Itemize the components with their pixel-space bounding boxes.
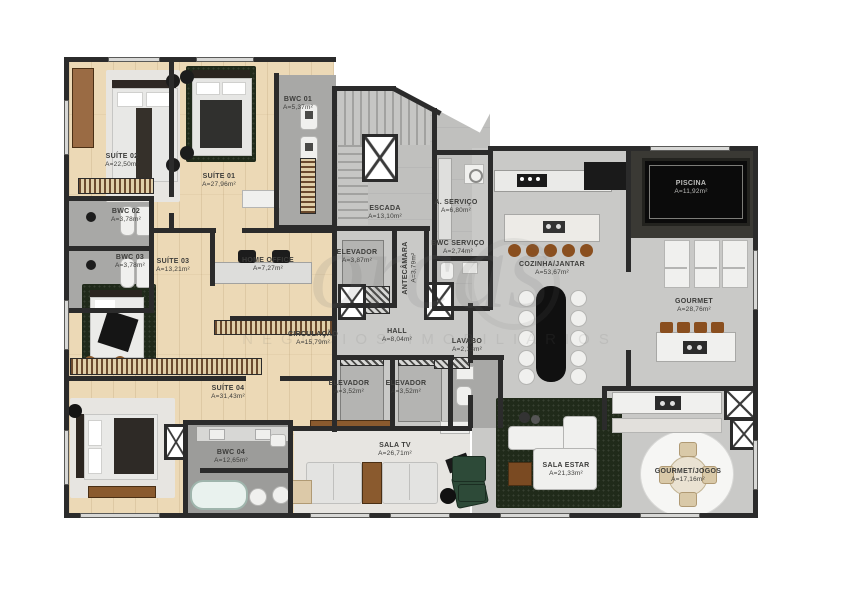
bar-stool xyxy=(580,244,593,257)
room-label-elevador-1: ELEVADORA=3,87m² xyxy=(337,248,378,266)
wall xyxy=(432,155,437,311)
wall xyxy=(602,386,758,391)
room-label-elevador-2: ELEVADORA=3,52m² xyxy=(329,379,370,397)
wall xyxy=(424,226,429,308)
bar-stool xyxy=(562,244,575,257)
room-label-bwc-04: BWC 04A=12,65m² xyxy=(214,448,248,466)
lounge-chair xyxy=(664,240,690,288)
wall xyxy=(292,426,472,431)
room-label-home-office: HOME OFFICEA=7,27m² xyxy=(242,256,294,274)
side-table xyxy=(440,488,456,504)
window xyxy=(500,513,570,518)
wall xyxy=(626,146,631,241)
window xyxy=(196,57,254,62)
window xyxy=(108,57,160,62)
room-label-piscina: PISCINAA=11,92m² xyxy=(674,179,707,197)
closet-hatch-suite-02 xyxy=(78,178,154,194)
dining-chair xyxy=(570,330,587,347)
wall xyxy=(498,355,503,428)
bar-stool xyxy=(677,322,690,333)
wall xyxy=(66,246,154,251)
bar-stool xyxy=(711,322,724,333)
wall xyxy=(183,420,290,425)
games-chair xyxy=(679,492,697,507)
wall xyxy=(169,57,174,197)
sofa-chaise xyxy=(508,426,566,450)
wall xyxy=(334,226,430,231)
bed-suite-01 xyxy=(192,70,250,154)
wardrobe-suite-02 xyxy=(72,68,94,148)
wall xyxy=(200,468,290,473)
toilet xyxy=(440,262,454,280)
shaft xyxy=(338,284,366,320)
nightstand xyxy=(180,146,194,160)
window xyxy=(753,440,758,490)
window xyxy=(650,146,730,151)
wall xyxy=(66,376,246,381)
washer xyxy=(464,164,484,184)
room-label-antecamara: ANTECÂMARAA=3,79m² xyxy=(401,241,419,294)
shaft-hatch xyxy=(364,286,390,314)
shower-head xyxy=(86,260,96,270)
window xyxy=(390,513,450,518)
dining-chair xyxy=(570,310,587,327)
floor-lamp xyxy=(68,404,82,418)
room-label-lavabo: LAVABOA=2,13m² xyxy=(452,337,482,355)
wall xyxy=(66,196,154,201)
gourmet-bar xyxy=(656,332,736,362)
wall xyxy=(468,395,473,428)
wall xyxy=(274,73,279,230)
window xyxy=(64,430,69,485)
room-label-area-servico: A. SERVIÇOA=6,80m² xyxy=(434,198,477,216)
wall xyxy=(392,226,397,308)
bed-suite-03 xyxy=(90,290,142,356)
room-label-suite-03: SUÍTE 03A=13,21m² xyxy=(156,257,190,275)
dining-chair xyxy=(518,330,535,347)
decor xyxy=(531,415,540,424)
room-label-bwc-02: BWC 02A=3,78m² xyxy=(111,207,141,225)
dining-chair xyxy=(518,368,535,385)
shaft xyxy=(724,388,756,420)
lounge-chair xyxy=(694,240,720,288)
window xyxy=(753,250,758,310)
window xyxy=(64,100,69,155)
dining-chair xyxy=(570,350,587,367)
ottoman-sala-estar xyxy=(458,484,486,502)
counter-gourmet-jogos xyxy=(612,392,722,414)
decor xyxy=(519,412,530,423)
room-label-gourmet: GOURMETA=28,76m² xyxy=(675,297,713,315)
wall xyxy=(334,303,394,308)
shower-head xyxy=(86,212,96,222)
bar-stool xyxy=(694,322,707,333)
stair-void-shaft xyxy=(362,134,398,182)
wall xyxy=(280,376,336,381)
wall xyxy=(626,240,631,272)
lounge-chair xyxy=(722,240,748,288)
window xyxy=(640,513,700,518)
floor-plan: orcas NEGÓCIOS IMOBILIÁRIOS SUÍTE 02A=22… xyxy=(0,0,851,600)
armchair-sala-estar xyxy=(452,456,486,482)
room-label-cozinha-jantar: COZINHA/JANTARA=53,67m² xyxy=(519,260,585,278)
wall xyxy=(626,350,631,388)
wall xyxy=(154,228,216,233)
room-label-escada: ESCADAA=13,10m² xyxy=(368,204,402,222)
wall xyxy=(432,108,437,155)
fridge xyxy=(584,162,626,190)
dining-chair xyxy=(518,350,535,367)
counter-gourmet-jogos-2 xyxy=(612,418,722,433)
window xyxy=(80,513,160,518)
room-label-circulacao: CIRCULAÇÃOA=15,79m² xyxy=(288,330,338,348)
wall xyxy=(602,386,607,430)
room-label-gourmet-jogos: GOURMET/JOGOSA=17,16m² xyxy=(655,467,722,485)
wall xyxy=(149,196,154,312)
room-label-suite-04: SUÍTE 04A=31,43m² xyxy=(211,384,245,402)
room-label-sala-tv: SALA TVA=26,71m² xyxy=(378,441,412,459)
bed-suite-04 xyxy=(76,414,156,478)
window xyxy=(310,513,370,518)
wardrobe-hatch-suite-04 xyxy=(70,358,262,375)
room-label-bwc-01: BWC 01A=5,37m² xyxy=(283,95,313,113)
nightstand xyxy=(180,70,194,84)
window xyxy=(64,300,69,350)
room-label-bwc-servico: BWC SERVIÇOA=2,74m² xyxy=(431,239,484,257)
wall xyxy=(183,420,188,518)
room-label-sala-estar: SALA ESTARA=21,33m² xyxy=(543,461,590,479)
round-sink xyxy=(249,488,267,506)
closet-hatch-bwc-01 xyxy=(300,158,316,214)
room-label-bwc-03: BWC 03A=3,78m² xyxy=(115,253,145,271)
coffee-table xyxy=(508,462,532,486)
dining-chair xyxy=(570,290,587,307)
wall xyxy=(66,308,154,313)
wall xyxy=(448,355,453,428)
wall xyxy=(242,228,336,233)
room-label-elevador-3: ELEVADORA=3,52m² xyxy=(386,379,427,397)
room-label-hall: HALLA=8,04m² xyxy=(382,327,412,345)
bar-stool xyxy=(660,322,673,333)
wall xyxy=(210,228,215,286)
room-label-suite-02: SUÍTE 02A=22,50m² xyxy=(105,152,139,170)
bench-suite-04 xyxy=(88,486,156,498)
games-chair xyxy=(679,442,697,457)
wall xyxy=(334,86,396,91)
toilet xyxy=(270,434,286,447)
sofa-sala-tv xyxy=(306,462,436,502)
wall xyxy=(230,316,336,321)
room-label-suite-01: SUÍTE 01A=27,96m² xyxy=(202,172,236,190)
dining-chair xyxy=(570,368,587,385)
wall xyxy=(432,150,492,155)
bathtub xyxy=(190,480,248,510)
